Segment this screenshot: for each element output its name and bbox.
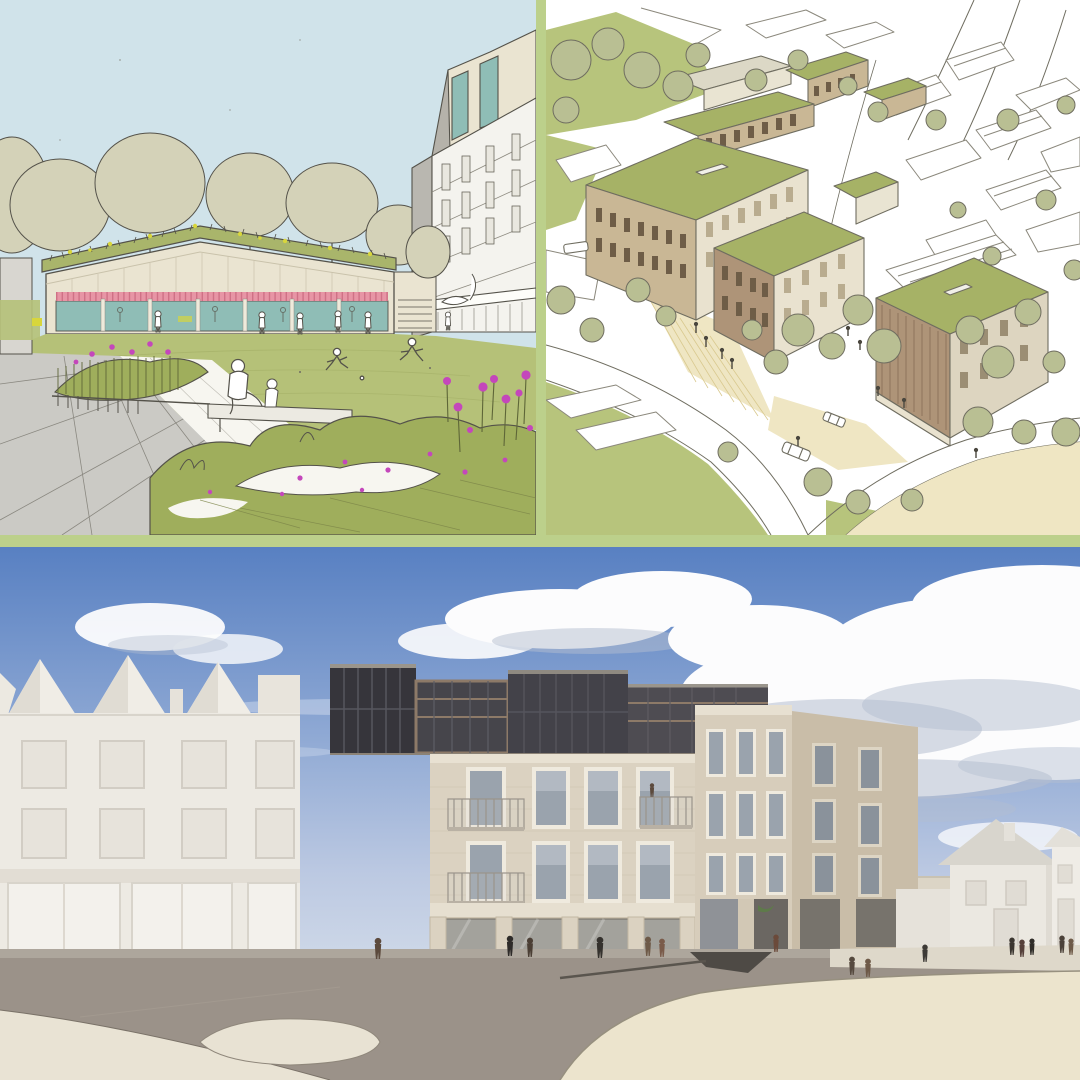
aerial-masterplan-illustration [546, 0, 1080, 535]
panel-park-pavilion-sketch [0, 0, 536, 535]
panel-street-view-render [0, 547, 1080, 1080]
brick-corner-tower [695, 705, 918, 953]
panel-aerial-masterplan-sketch [546, 0, 1080, 535]
park-pavilion-sketch-illustration [0, 0, 536, 535]
stairs-and-annex [392, 272, 436, 332]
street-render-illustration [0, 547, 1080, 1080]
architectural-collage [0, 0, 1080, 1080]
ground-plane [0, 945, 1080, 1080]
divider-horizontal [0, 535, 1080, 547]
divider-vertical [536, 0, 546, 535]
shopfront-colonnade [430, 917, 695, 952]
brick-building-left-wing [430, 754, 695, 952]
